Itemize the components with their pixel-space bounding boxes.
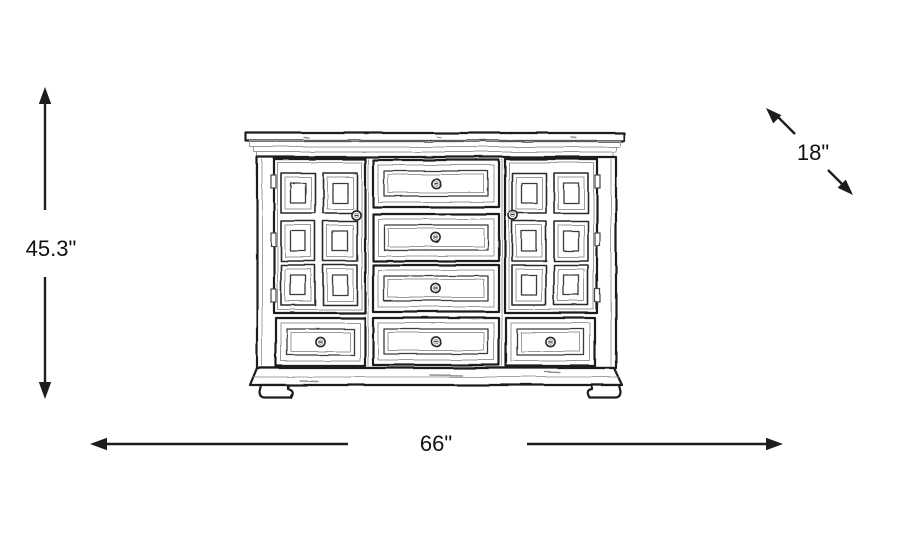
- depth-dimension-label: 18": [797, 140, 829, 165]
- left-door-hinge: [271, 289, 276, 302]
- bottom-center-drawer: [373, 318, 499, 365]
- center-drawer-3: [373, 265, 499, 312]
- width-dimension-label: 66": [420, 431, 452, 456]
- arrow-right-icon: [766, 438, 783, 450]
- arrow-left-icon: [90, 438, 107, 450]
- dresser-base: [250, 368, 622, 398]
- left-foot: [260, 385, 293, 398]
- height-dimension-label: 45.3": [26, 236, 77, 261]
- left-door-knob: [351, 210, 360, 219]
- diagram-canvas: 45.3" 66" 18": [0, 0, 900, 550]
- right-door-hinge: [595, 289, 600, 302]
- dresser-drawing: [246, 133, 624, 398]
- center-drawer-2: [373, 214, 499, 261]
- right-door-knob: [508, 210, 517, 219]
- right-door: [505, 159, 600, 313]
- left-door: [271, 159, 365, 313]
- right-door-hinge: [595, 233, 600, 246]
- bottom-drawer-row: [276, 318, 595, 366]
- dresser-crown-molding: [246, 133, 624, 157]
- bottom-right-drawer: [506, 318, 595, 366]
- height-dimension: 45.3": [26, 87, 77, 399]
- right-door-hinge: [595, 175, 600, 188]
- dimension-diagram-svg: 45.3" 66" 18": [0, 0, 900, 550]
- width-dimension: 66": [90, 431, 783, 456]
- depth-dimension: 18": [766, 108, 853, 195]
- center-drawer-1: [373, 160, 499, 207]
- arrow-up-icon: [39, 87, 51, 104]
- left-door-hinge: [271, 233, 276, 246]
- right-foot: [588, 385, 621, 398]
- left-door-hinge: [271, 175, 276, 188]
- arrow-up-left-icon: [766, 108, 781, 123]
- arrow-down-icon: [39, 382, 51, 399]
- center-drawer-stack: [373, 160, 499, 312]
- bottom-left-drawer: [276, 318, 365, 366]
